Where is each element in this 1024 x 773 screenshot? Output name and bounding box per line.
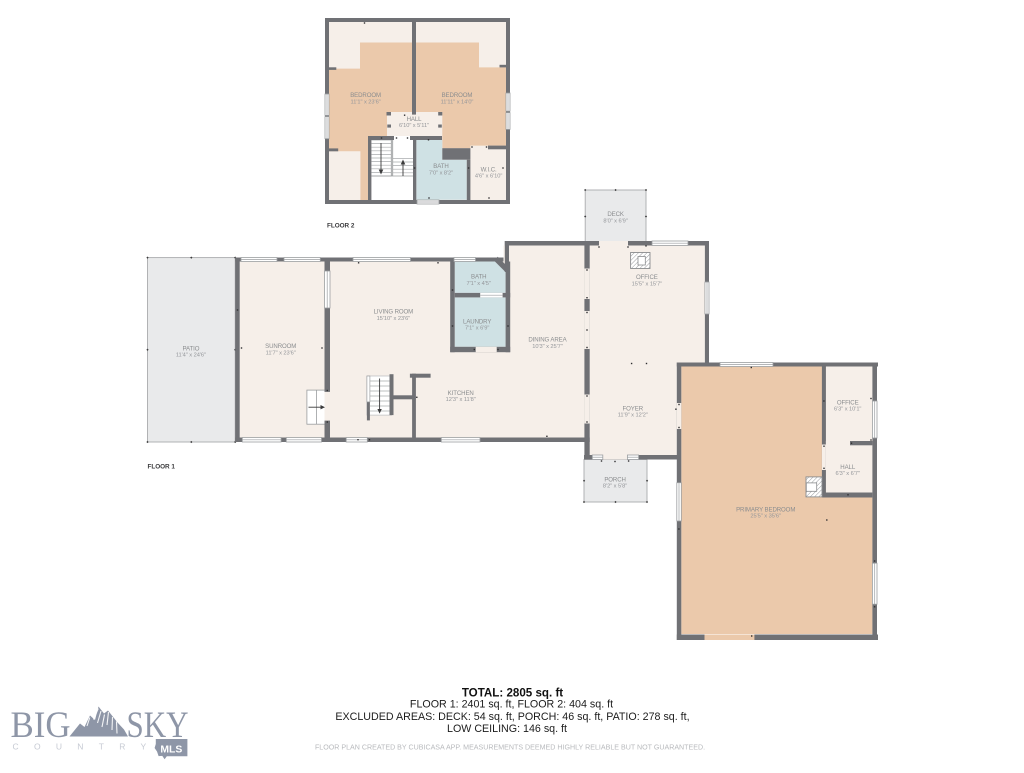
svg-text:PORCH: PORCH: [604, 476, 626, 483]
svg-text:LOW CEILING: 146 sq. ft: LOW CEILING: 146 sq. ft: [447, 723, 567, 735]
svg-text:FLOOR 2: FLOOR 2: [327, 223, 355, 230]
svg-text:OFFICE: OFFICE: [837, 399, 859, 406]
svg-text:6'3" x 10'1": 6'3" x 10'1": [834, 407, 861, 413]
svg-text:DINING AREA: DINING AREA: [528, 337, 567, 344]
svg-text:MLS: MLS: [160, 745, 182, 756]
svg-text:11'7" x 23'6": 11'7" x 23'6": [266, 350, 296, 356]
svg-text:LIVING ROOM: LIVING ROOM: [374, 309, 414, 316]
svg-text:11'11" x 14'0": 11'11" x 14'0": [441, 99, 474, 105]
svg-text:25'5" x 35'6": 25'5" x 35'6": [750, 514, 781, 520]
svg-text:FLOOR 1: 2401 sq. ft, FLOOR 2:: FLOOR 1: 2401 sq. ft, FLOOR 2: 404 sq. f…: [410, 699, 613, 711]
svg-text:DECK: DECK: [607, 211, 624, 218]
svg-text:12'3" x 11'8": 12'3" x 11'8": [446, 397, 476, 403]
svg-text:8'0" x 6'9": 8'0" x 6'9": [603, 218, 627, 224]
svg-text:7'1" x 4'5": 7'1" x 4'5": [467, 281, 491, 287]
svg-text:15'10" x 23'6": 15'10" x 23'6": [377, 316, 411, 322]
svg-text:OFFICE: OFFICE: [636, 274, 658, 281]
svg-text:PRIMARY BEDROOM: PRIMARY BEDROOM: [736, 506, 795, 513]
svg-text:BEDROOM: BEDROOM: [442, 92, 473, 99]
svg-text:10'3" x 25'7": 10'3" x 25'7": [532, 344, 563, 350]
svg-text:HALL: HALL: [840, 464, 856, 471]
svg-text:BATH: BATH: [471, 274, 486, 281]
svg-text:KITCHEN: KITCHEN: [448, 390, 474, 397]
svg-text:BATH: BATH: [433, 163, 448, 170]
svg-text:FOYER: FOYER: [623, 405, 644, 412]
svg-text:FLOOR PLAN CREATED BY CUBICASA: FLOOR PLAN CREATED BY CUBICASA APP. MEAS…: [315, 744, 705, 752]
svg-text:11'4" x 24'6": 11'4" x 24'6": [176, 353, 206, 359]
svg-text:BEDROOM: BEDROOM: [350, 92, 381, 99]
svg-text:6'10" x 5'11": 6'10" x 5'11": [399, 123, 429, 129]
svg-text:LAUNDRY: LAUNDRY: [463, 319, 491, 326]
svg-text:4'6" x 6'10": 4'6" x 6'10": [475, 174, 502, 180]
svg-text:6'3" x 6'7": 6'3" x 6'7": [836, 471, 860, 477]
svg-text:HALL: HALL: [407, 116, 423, 123]
svg-text:7'0" x 8'2": 7'0" x 8'2": [429, 170, 453, 176]
svg-text:8'2" x 5'8": 8'2" x 5'8": [603, 484, 627, 490]
svg-text:11'9" x 12'2": 11'9" x 12'2": [618, 413, 648, 419]
svg-text:FLOOR 1: FLOOR 1: [148, 464, 176, 471]
svg-text:7'1" x 6'9": 7'1" x 6'9": [465, 326, 489, 332]
svg-text:PATIO: PATIO: [182, 346, 199, 353]
svg-text:EXCLUDED AREAS: DECK: 54 sq. f: EXCLUDED AREAS: DECK: 54 sq. ft, PORCH: …: [335, 711, 689, 723]
svg-text:11'1" x 23'6": 11'1" x 23'6": [351, 99, 381, 105]
svg-text:W.I.C.: W.I.C.: [481, 166, 497, 173]
svg-text:SUNROOM: SUNROOM: [265, 343, 296, 350]
svg-text:BIG: BIG: [11, 705, 71, 746]
svg-text:15'5" x 15'7": 15'5" x 15'7": [632, 281, 663, 287]
svg-text:COUNTRY: COUNTRY: [13, 741, 162, 751]
